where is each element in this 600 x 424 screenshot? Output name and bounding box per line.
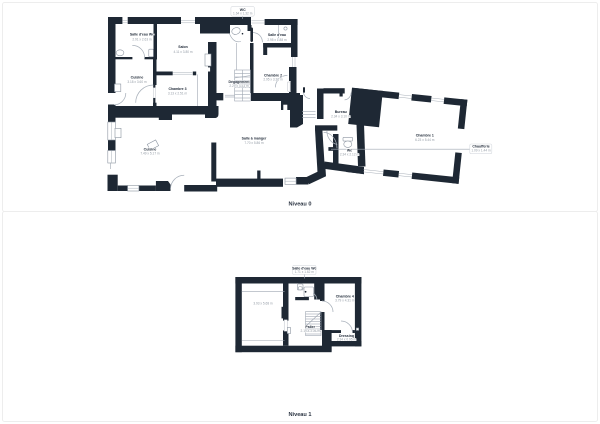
svg-text:3.18 x 3.60 m: 3.18 x 3.60 m — [127, 80, 147, 84]
svg-text:4.11 x 3.80 m: 4.11 x 3.80 m — [173, 50, 192, 54]
svg-text:Bureau: Bureau — [335, 110, 347, 114]
svg-text:1.71 x 1.62 m: 1.71 x 1.62 m — [295, 270, 315, 274]
svg-text:Chambre 1: Chambre 1 — [416, 134, 434, 138]
svg-text:2.34 x 2.12 m: 2.34 x 2.12 m — [340, 153, 360, 157]
svg-text:2.95 x 3.36 m: 2.95 x 3.36 m — [263, 77, 283, 81]
svg-text:3.93 x 5.68 m: 3.93 x 5.68 m — [253, 301, 273, 305]
svg-text:1.64 x 1.32 m: 1.64 x 1.32 m — [233, 11, 253, 15]
svg-text:Niveau 1: Niveau 1 — [288, 412, 311, 418]
svg-text:Salle à manger: Salle à manger — [242, 136, 267, 140]
svg-text:7.49 x 5.17 m: 7.49 x 5.17 m — [140, 152, 160, 156]
svg-text:Salon: Salon — [178, 45, 188, 49]
svg-text:2.34 x 3.10 m: 2.34 x 3.10 m — [331, 115, 351, 119]
svg-text:6.23 x 5.44 m: 6.23 x 5.44 m — [415, 138, 435, 142]
svg-text:2.29 x 4.53 m: 2.29 x 4.53 m — [229, 84, 249, 88]
svg-text:1.09 x 1.44 m: 1.09 x 1.44 m — [471, 149, 491, 153]
svg-text:2.34 x 0.95 m: 2.34 x 0.95 m — [337, 338, 357, 342]
svg-text:2.91 x 2.63 m: 2.91 x 2.63 m — [132, 38, 152, 42]
svg-text:3.13 x 2.51 m: 3.13 x 2.51 m — [168, 91, 188, 95]
svg-text:Salle d'eau: Salle d'eau — [268, 33, 286, 37]
svg-text:Salle d'eau Wc: Salle d'eau Wc — [130, 33, 154, 37]
svg-text:2.19 x 3.05 m: 2.19 x 3.05 m — [301, 329, 321, 333]
svg-text:3.79 x 4.31 m: 3.79 x 4.31 m — [335, 298, 355, 302]
svg-text:Niveau 0: Niveau 0 — [288, 202, 311, 208]
svg-text:2.95 x 1.88 m: 2.95 x 1.88 m — [267, 38, 287, 42]
svg-text:7.70 x 5.86 m: 7.70 x 5.86 m — [244, 141, 264, 145]
